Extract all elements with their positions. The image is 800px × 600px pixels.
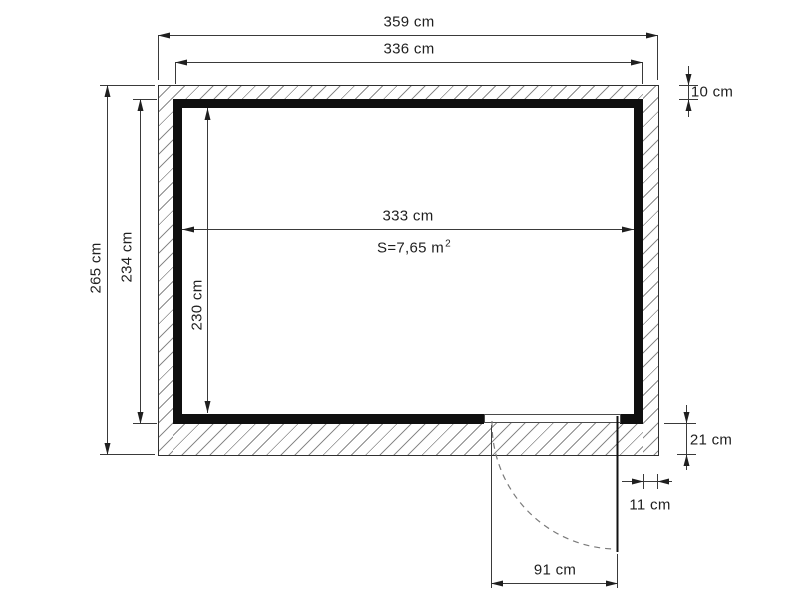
area-exponent: 2 <box>445 239 451 250</box>
dim-interior-width-label: 333 cm <box>383 209 434 224</box>
dimension-linework <box>0 0 800 600</box>
dim-interior-height-lines <box>205 108 211 413</box>
dim-interior-height-label: 230 cm <box>190 280 205 331</box>
area-value: S=7,65 m <box>377 240 444 257</box>
dim-outer-height-label: 265 cm <box>89 243 104 294</box>
dim-top-wall-label: 10 cm <box>691 85 733 100</box>
dim-side-wall-label: 11 cm <box>629 498 670 513</box>
door-swing-arc <box>492 421 613 549</box>
floor-plan: 359 cm 336 cm 333 cm S=7,65 m2 265 cm 23… <box>0 0 800 600</box>
dim-frame-height-lines <box>133 99 157 424</box>
dim-door-width-label: 91 cm <box>534 563 576 578</box>
area-label: S=7,65 m2 <box>377 241 451 256</box>
door-swing <box>492 416 618 552</box>
dim-bottom-wall-label: 21 cm <box>690 433 732 448</box>
dim-frame-width-label: 336 cm <box>384 42 435 57</box>
dim-interior-width-lines <box>182 227 634 233</box>
dim-frame-width-lines <box>175 60 643 85</box>
dim-side-wall-lines <box>622 474 672 489</box>
dim-frame-height-label: 234 cm <box>120 232 135 283</box>
dim-outer-width-label: 359 cm <box>384 15 435 30</box>
